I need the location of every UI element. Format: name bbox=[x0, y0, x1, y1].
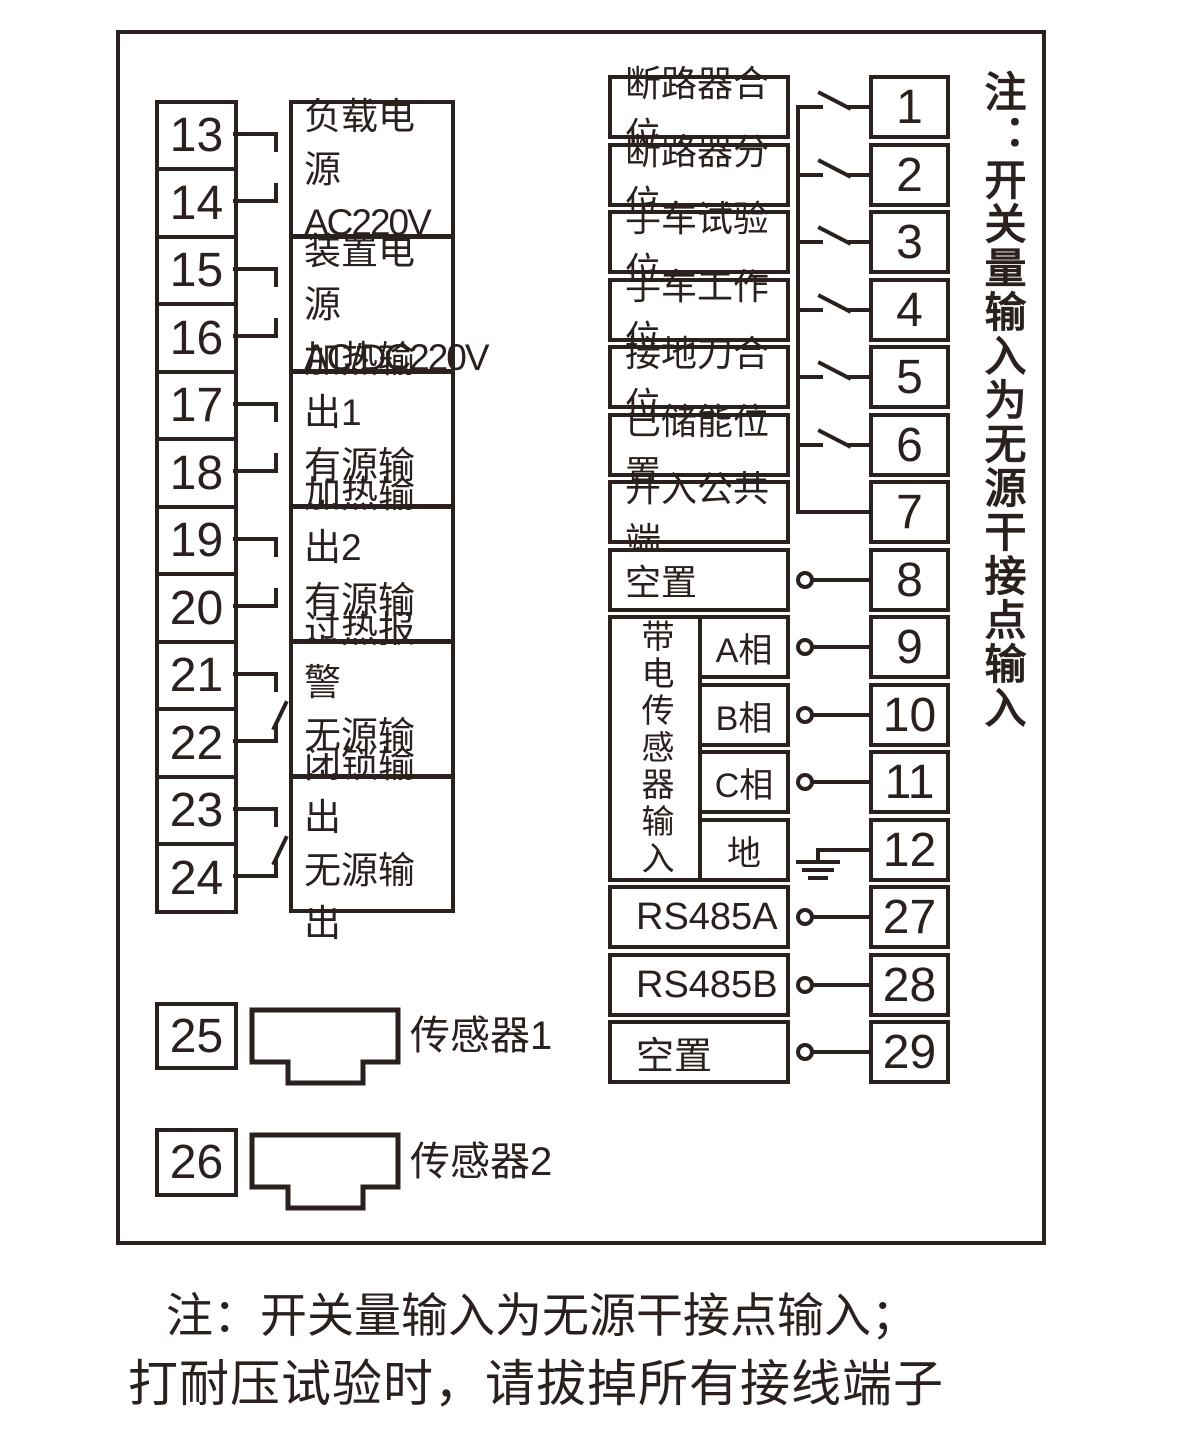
label-line: RS485B bbox=[636, 964, 778, 1007]
footer-note-line1: 注：开关量输入为无源干接点输入； bbox=[166, 1277, 918, 1346]
terminal-number: 22 bbox=[170, 716, 223, 771]
terminal-number: 11 bbox=[885, 755, 935, 810]
label-line: 空置 bbox=[636, 1025, 712, 1080]
label-line: 地 bbox=[727, 826, 761, 875]
terminal-10: 10 bbox=[869, 683, 950, 747]
terminal-number: 28 bbox=[883, 958, 936, 1013]
terminal-number: 6 bbox=[896, 418, 923, 473]
terminal-number: 4 bbox=[896, 283, 923, 338]
terminal-24: 24 bbox=[155, 842, 238, 914]
terminal-number: 16 bbox=[170, 311, 223, 366]
terminal-22: 22 bbox=[155, 707, 238, 779]
terminal-number: 1 bbox=[896, 80, 923, 135]
label-line: B相 bbox=[716, 691, 773, 740]
label-line: 装置电源 bbox=[304, 225, 451, 331]
terminal-number: 20 bbox=[170, 581, 223, 636]
label-line: RS485A bbox=[636, 896, 778, 939]
terminal-3: 3 bbox=[869, 210, 950, 274]
terminal-number: 18 bbox=[170, 446, 223, 501]
terminal-29: 29 bbox=[869, 1020, 950, 1084]
label-line: 空置 bbox=[625, 554, 697, 606]
label-vacant-29: 空置 bbox=[608, 1020, 790, 1084]
terminal-number: 2 bbox=[896, 148, 923, 203]
sensor-1-label: 传感器1 bbox=[410, 1014, 552, 1058]
label-input-common: 开入公共端 bbox=[608, 480, 790, 544]
label-line: 加热输出2 bbox=[304, 468, 451, 574]
terminal-18: 18 bbox=[155, 437, 238, 509]
terminal-5: 5 bbox=[869, 345, 950, 409]
terminal-number: 9 bbox=[896, 620, 923, 675]
terminal-number: 21 bbox=[170, 648, 223, 703]
terminal-9: 9 bbox=[869, 615, 950, 679]
terminal-number: 15 bbox=[170, 243, 223, 298]
label-ground: 地 bbox=[698, 818, 790, 882]
label-line: A相 bbox=[716, 623, 773, 672]
terminal-number: 19 bbox=[170, 513, 223, 568]
terminal-number: 24 bbox=[170, 851, 223, 906]
terminal-number: 3 bbox=[896, 215, 923, 270]
label-load-power: 负载电源 AC220V bbox=[289, 100, 455, 238]
terminal-number: 25 bbox=[170, 1009, 223, 1064]
label-line: 加热输出1 bbox=[304, 333, 451, 439]
terminal-20: 20 bbox=[155, 572, 238, 644]
terminal-6: 6 bbox=[869, 413, 950, 477]
label-rs485a: RS485A bbox=[608, 885, 790, 949]
terminal-25: 25 bbox=[155, 1002, 238, 1070]
label-line: C相 bbox=[715, 758, 774, 807]
wiring-diagram: 13 14 15 16 17 18 19 20 21 22 23 24 负载电源… bbox=[0, 0, 1180, 1432]
sensor-2-label: 传感器2 bbox=[410, 1140, 552, 1184]
terminal-7: 7 bbox=[869, 480, 950, 544]
terminal-11: 11 bbox=[869, 750, 950, 814]
terminal-number: 26 bbox=[170, 1135, 223, 1190]
label-line: 负载电源 bbox=[304, 90, 451, 196]
terminal-17: 17 bbox=[155, 370, 238, 441]
terminal-number: 13 bbox=[170, 108, 223, 163]
terminal-15: 15 bbox=[155, 235, 238, 306]
terminal-4: 4 bbox=[869, 278, 950, 342]
terminal-12: 12 bbox=[869, 818, 950, 882]
terminal-13: 13 bbox=[155, 100, 238, 171]
terminal-23: 23 bbox=[155, 775, 238, 846]
terminal-21: 21 bbox=[155, 640, 238, 711]
terminal-number: 23 bbox=[170, 783, 223, 838]
terminal-number: 10 bbox=[883, 688, 936, 743]
label-phase-a: A相 bbox=[698, 615, 790, 679]
terminal-number: 5 bbox=[896, 350, 923, 405]
terminal-number: 7 bbox=[896, 485, 923, 540]
label-line: 闭锁输出 bbox=[304, 738, 451, 844]
terminal-14: 14 bbox=[155, 167, 238, 239]
terminal-number: 29 bbox=[883, 1025, 936, 1080]
terminal-1: 1 bbox=[869, 75, 950, 139]
terminal-19: 19 bbox=[155, 505, 238, 576]
label-phase-b: B相 bbox=[698, 683, 790, 747]
footer-note-line2: 打耐压试验时，请拔掉所有接线端子 bbox=[128, 1344, 944, 1416]
terminal-8: 8 bbox=[869, 548, 950, 612]
terminal-number: 17 bbox=[170, 378, 223, 433]
terminal-number: 27 bbox=[883, 890, 936, 945]
label-line: 带电传感器输入 bbox=[631, 619, 679, 878]
label-line: 无源输出 bbox=[304, 844, 451, 950]
terminal-number: 14 bbox=[170, 176, 223, 231]
terminal-28: 28 bbox=[869, 953, 950, 1017]
label-phase-c: C相 bbox=[698, 750, 790, 814]
terminal-26: 26 bbox=[155, 1128, 238, 1197]
terminal-number: 8 bbox=[896, 553, 923, 608]
terminal-number: 12 bbox=[883, 823, 936, 878]
label-lock-output: 闭锁输出 无源输出 bbox=[289, 775, 455, 913]
terminal-27: 27 bbox=[869, 885, 950, 949]
label-line: 过热报警 bbox=[304, 603, 451, 709]
label-live-sensor-input: 带电传感器输入 bbox=[608, 615, 702, 882]
label-vacant-8: 空置 bbox=[608, 548, 790, 612]
terminal-2: 2 bbox=[869, 143, 950, 207]
terminal-16: 16 bbox=[155, 302, 238, 374]
side-note-vertical: 注：开关量输入为无源干接点输入 bbox=[972, 70, 1033, 730]
label-rs485b: RS485B bbox=[608, 953, 790, 1017]
